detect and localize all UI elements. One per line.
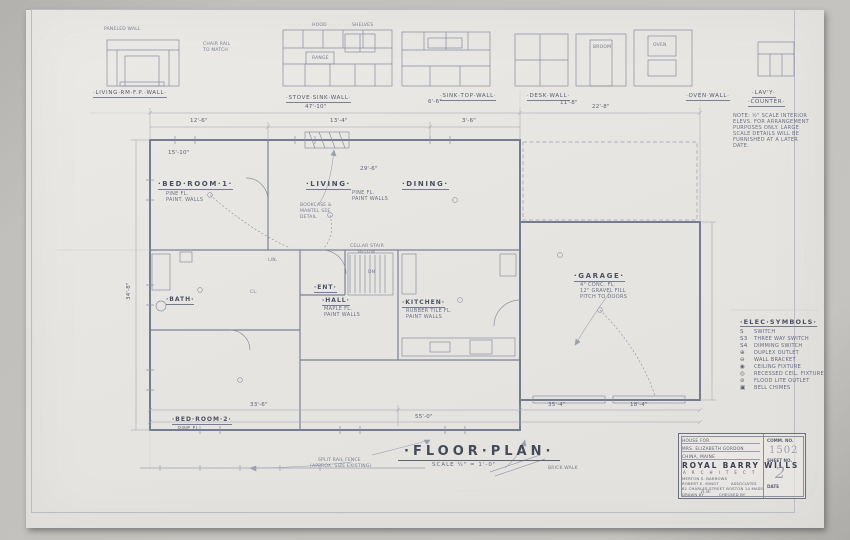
legend-label: WALL BRACKET xyxy=(754,357,796,363)
legend-label: RECESSED CEIL. FIXTURE xyxy=(754,371,824,377)
note-fence-2: (APPROX. SIZE EXISTING) xyxy=(310,464,372,470)
dim-bottom-3: 18'-4" xyxy=(630,402,648,408)
note-cellar-below: BELOW xyxy=(358,250,375,256)
legend-label: SWITCH xyxy=(754,329,775,335)
note-linen-closet: LIN. xyxy=(268,258,277,264)
comm-no-label: COMM. NO. xyxy=(767,438,794,443)
room-label-hall: ·HALL· xyxy=(322,297,350,306)
dim-top-2: 13'-4" xyxy=(330,118,348,124)
note-bookcase-3: DETAIL xyxy=(300,215,317,221)
room-label-dining: ·DINING· xyxy=(402,180,449,190)
note-dn: DN xyxy=(368,270,375,276)
legend-item-ceiling-fixture: ◉CEILING FIXTURE xyxy=(740,364,801,370)
note-cellar-stair: CELLAR STAIR xyxy=(350,244,384,250)
note-bookcase-2: MANTEL SEE xyxy=(300,209,330,215)
dim-left-side: 34'-8" xyxy=(126,282,132,300)
dim-overall-top: 47'-10" xyxy=(305,104,326,110)
recessed-fixture-symbol-icon: ◎ xyxy=(740,371,754,377)
photo-of-drawing: ·LIVING·RM·F.P.·WALL· ·STOVE·SINK·WALL· … xyxy=(0,0,850,540)
switch-symbol-icon: S xyxy=(740,329,754,335)
duplex-outlet-symbol-icon: ⊕ xyxy=(740,350,754,356)
legend-label: BELL CHIMES xyxy=(754,385,790,391)
drawing-scale: SCALE ¼" = 1'-0" xyxy=(432,462,496,468)
room-label-kitchen: ·KITCHEN· xyxy=(402,299,445,308)
legend-item-three-way-switch: S3THREE WAY SWITCH xyxy=(740,336,809,342)
elevation-label-living-fp-wall: ·LIVING·RM·F.P.·WALL· xyxy=(93,90,167,98)
dim-bottom-2: 35'-4" xyxy=(548,402,566,408)
project-name-line2: MRS. ELIZABETH GORDON xyxy=(682,446,760,452)
note-closet: CL. xyxy=(250,290,258,296)
legend-label: DUPLEX OUTLET xyxy=(754,350,799,356)
legend-item-bell-chimes: ▣BELL CHIMES xyxy=(740,385,790,391)
legend-item-switch: SSWITCH xyxy=(740,329,775,335)
legend-label: THREE WAY SWITCH xyxy=(754,336,809,342)
legend-item-flood-lite: ⊘FLOOD LITE OUTLET xyxy=(740,378,810,384)
dim-bedroom1: 15'-10" xyxy=(168,150,189,156)
legend-label: DIMMING SWITCH xyxy=(754,343,802,349)
room-label-bedroom2: ·BED·ROOM·2· xyxy=(172,416,232,425)
elevation-label-lavy: ·LAV'Y· xyxy=(752,90,776,98)
bell-chimes-symbol-icon: ▣ xyxy=(740,385,754,391)
title-block: HOUSE FOR. MRS. ELIZABETH GORDON CHINA, … xyxy=(678,433,806,499)
elevation-note-chair-rail: CHAIR RAIL xyxy=(203,42,230,48)
legend-item-dimming-switch: S4DIMMING SWITCH xyxy=(740,343,802,349)
elevation-note-to-match: TO MATCH xyxy=(203,48,228,54)
checked-by-label: CHECKED BY xyxy=(719,492,745,497)
room-label-living: ·LIVING· xyxy=(306,180,351,190)
project-name-line1: HOUSE FOR. xyxy=(682,438,760,444)
dim-bottom-1: 33'-6" xyxy=(250,402,268,408)
dim-living-dining: 29'-6" xyxy=(360,166,378,172)
elevation-note-oven: OVEN xyxy=(653,43,667,49)
wall-bracket-symbol-icon: ⊖ xyxy=(740,357,754,363)
dim-garage-top: 22'-8" xyxy=(592,104,610,110)
elevation-label-lavy-counter: ·COUNTER· xyxy=(748,99,785,107)
elevation-note-range: RANGE xyxy=(312,56,329,62)
note-bookcase-1: BOOKCASE & xyxy=(300,203,332,209)
firm-address: 81 CHARLES STREET BOSTON 14 MASS. xyxy=(682,486,764,491)
note-fence-1: SPLIT RAIL FENCE xyxy=(318,458,361,464)
elevation-note-hood: HOOD xyxy=(312,23,327,29)
drawn-by-initials: R.W. xyxy=(701,490,711,495)
legend-item-duplex-outlet: ⊕DUPLEX OUTLET xyxy=(740,350,799,356)
room-label-bath: ·BATH· xyxy=(166,296,194,305)
scale-note-line6: DATE. xyxy=(733,143,749,149)
legend-label: FLOOD LITE OUTLET xyxy=(754,378,810,384)
dim-top-3: 3'-6" xyxy=(462,118,476,124)
elevation-label-stove-sink-wall: ·STOVE·SINK·WALL· xyxy=(286,95,351,103)
elevation-dim-2: 11'-8" xyxy=(560,100,578,106)
elevation-label-sink-top-wall: ·SINK·TOP·WALL· xyxy=(440,93,496,101)
room-label-entry: ·ENT· xyxy=(314,284,337,293)
comm-no-value: 1502 xyxy=(769,445,798,456)
bedroom1-note-walls: PAINT. WALLS xyxy=(166,197,203,203)
elevation-note-paneled-wall: PANELED WALL xyxy=(104,27,141,33)
garage-note-pitch: PITCH TO DOORS xyxy=(580,294,627,300)
dim-top-1: 12'-6" xyxy=(190,118,208,124)
bedroom2-note-floor: PINE FL. xyxy=(178,426,201,432)
elevation-note-broom: BROOM xyxy=(593,45,611,51)
legend-item-wall-bracket: ⊖WALL BRACKET xyxy=(740,357,796,363)
dimming-switch-symbol-icon: S4 xyxy=(740,343,754,349)
living-dining-note-walls: PAINT WALLS xyxy=(352,196,388,202)
architect-title: A R C H I T E C T xyxy=(683,470,757,475)
kitchen-note-walls: PAINT WALLS xyxy=(406,314,442,320)
room-label-bedroom1: ·BED·ROOM·1· xyxy=(158,180,233,190)
dim-overall-bottom: 55'-0" xyxy=(415,414,433,420)
three-way-switch-symbol-icon: S3 xyxy=(740,336,754,342)
legend-item-recessed-fixture: ◎RECESSED CEIL. FIXTURE xyxy=(740,371,824,377)
legend-label: CEILING FIXTURE xyxy=(754,364,801,370)
ceiling-fixture-symbol-icon: ◉ xyxy=(740,364,754,370)
hall-note-walls: PAINT WALLS xyxy=(324,312,360,318)
legend-title: ·ELEC·SYMBOLS· xyxy=(740,318,817,327)
flood-lite-symbol-icon: ⊘ xyxy=(740,378,754,384)
sheet-no-value: 2 xyxy=(775,463,785,482)
date-label: DATE xyxy=(767,484,779,489)
elevation-dim-1: 6'-6" xyxy=(428,99,442,105)
project-location: CHINA, MAINE xyxy=(682,454,760,460)
note-brick-walk: BRICK WALK xyxy=(548,466,578,472)
room-label-garage: ·GARAGE· xyxy=(574,272,625,282)
elevation-note-shelves: SHELVES xyxy=(352,23,373,29)
elevation-label-oven-wall: ·OVEN·WALL· xyxy=(686,93,730,101)
drawing-title: ·FLOOR·PLAN· xyxy=(398,444,560,461)
